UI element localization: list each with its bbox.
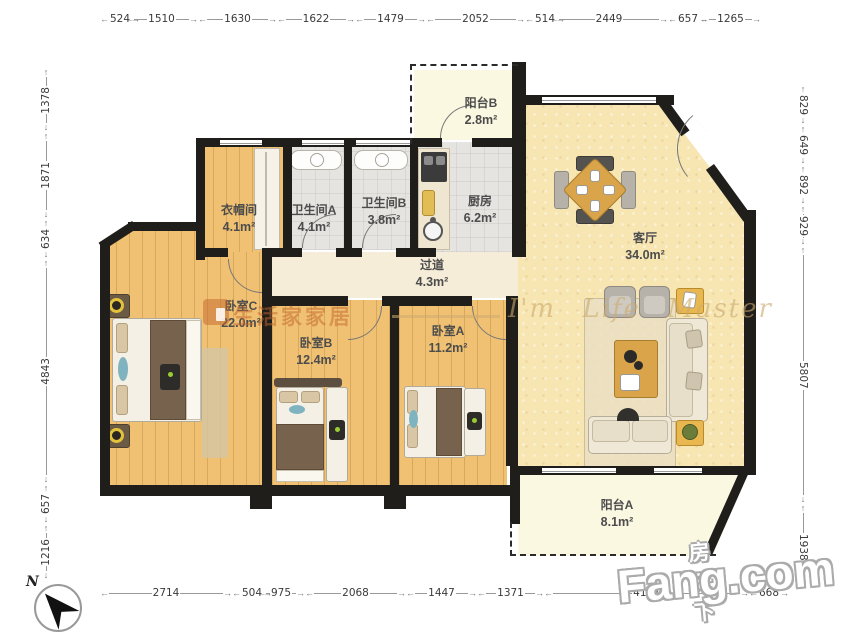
dim-value: 1630 xyxy=(223,13,252,25)
blanket-icon xyxy=(276,424,324,470)
dim-value: 2714 xyxy=(152,587,181,599)
room-area: 3.8m² xyxy=(362,212,407,228)
wall-segment xyxy=(262,138,302,147)
dimension-chain-top: 524 1510 1630 1622 1479 2052 514 2449 65… xyxy=(100,12,761,26)
room-area: 34.0m² xyxy=(625,247,665,263)
plate-icon xyxy=(590,200,600,212)
dim-value: 2052 xyxy=(461,13,490,25)
dim-value: 1479 xyxy=(376,13,405,25)
decor-icon xyxy=(634,361,643,370)
pillow-icon xyxy=(289,405,305,414)
room-name: 卧室A xyxy=(429,324,468,340)
wall-segment xyxy=(390,300,399,485)
room-label-balcony-a: 阳台A 8.1m² xyxy=(601,498,634,530)
wall-segment xyxy=(512,147,526,257)
basin-icon xyxy=(310,153,324,167)
room-area: 2.8m² xyxy=(465,112,498,128)
room-name: 厨房 xyxy=(464,194,497,210)
room-label-balcony-b: 阳台B 2.8m² xyxy=(465,96,498,128)
dimension-segment: 892 xyxy=(795,165,811,205)
room-label-corridor: 过道 4.3m² xyxy=(416,258,449,290)
floor-corridor xyxy=(265,252,518,298)
dimension-segment: 2052 xyxy=(426,12,525,26)
dim-value: 929 xyxy=(797,215,809,237)
plate-icon xyxy=(576,185,588,195)
wall-segment xyxy=(396,248,436,257)
window-segment xyxy=(356,138,410,147)
room-name: 阳台A xyxy=(601,498,634,514)
lamp-icon xyxy=(109,298,124,313)
brand-logo-icon xyxy=(203,299,229,325)
dimension-segment: 829 xyxy=(795,85,811,125)
dim-value: 4843 xyxy=(40,357,52,386)
window-segment xyxy=(542,95,656,105)
room-name: 阳台B xyxy=(465,96,498,112)
dim-value: 975 xyxy=(270,587,292,599)
room-label-kitchen: 厨房 6.2m² xyxy=(464,194,497,226)
wall-segment xyxy=(100,485,518,496)
dim-value: 1265 xyxy=(716,13,745,25)
dimension-segment: 975 xyxy=(257,586,305,600)
burner-icon xyxy=(424,156,433,165)
headboard-icon xyxy=(274,378,342,387)
indicator-dot-icon xyxy=(168,372,173,377)
room-label-cloakroom: 衣帽间 4.1m² xyxy=(221,203,257,235)
wall-segment xyxy=(744,210,756,472)
room-area: 12.4m² xyxy=(296,352,336,368)
room-area: 6.2m² xyxy=(464,210,497,226)
room-name: 过道 xyxy=(416,258,449,274)
floor-plan-canvas: 阳台B 2.8m² 衣帽间 4.1m² 卫生间A 4.1m² 卫生间B 3.8m… xyxy=(0,0,849,637)
room-area: 4.1m² xyxy=(221,219,257,235)
window-segment xyxy=(542,466,616,475)
dim-value: 634 xyxy=(40,228,52,250)
pillow-icon xyxy=(685,329,703,349)
dimension-segment: 524 xyxy=(100,12,125,26)
faucet-icon xyxy=(430,217,436,223)
room-label-bedroom-b: 卧室B 12.4m² xyxy=(296,336,336,368)
dimension-segment: 657 xyxy=(38,484,54,524)
wardrobe-rod-icon xyxy=(265,152,267,246)
burner-icon xyxy=(436,156,445,165)
dimension-segment: 1265 xyxy=(700,12,761,26)
dim-value: 1371 xyxy=(496,587,525,599)
dim-value: 1216 xyxy=(40,538,52,567)
wall-segment xyxy=(283,138,292,257)
dim-value: 892 xyxy=(797,174,809,196)
wall-segment xyxy=(262,250,272,495)
dimension-chain-right: 829 649 892 929 5807 1938 xyxy=(795,85,811,576)
wardrobe-icon xyxy=(254,148,280,250)
wall-segment xyxy=(526,95,542,105)
window-segment xyxy=(302,138,344,147)
pillow-icon xyxy=(279,391,298,403)
room-label-bedroom-a: 卧室A 11.2m² xyxy=(429,324,468,356)
pillow-icon xyxy=(301,391,320,403)
tray-icon xyxy=(620,374,640,391)
pillow-icon xyxy=(685,371,703,391)
dimension-segment: 4843 xyxy=(38,259,54,484)
wall-segment xyxy=(196,248,228,257)
dimension-segment: 634 xyxy=(38,219,54,259)
room-name: 卧室B xyxy=(296,336,336,352)
wall-segment xyxy=(100,243,110,495)
room-name: 衣帽间 xyxy=(221,203,257,219)
dimension-segment: 514 xyxy=(525,12,550,26)
dimension-segment: 929 xyxy=(795,205,811,246)
dimension-segment: 1371 xyxy=(477,586,544,600)
dimension-segment: 504 xyxy=(232,586,257,600)
room-area: 8.1m² xyxy=(601,514,634,530)
room-area: 11.2m² xyxy=(429,340,468,356)
wall-segment xyxy=(344,147,352,248)
pillow-icon xyxy=(118,357,128,381)
dimension-segment: 1622 xyxy=(277,12,355,26)
wall-segment xyxy=(410,147,418,248)
brand-watermark-dash xyxy=(392,315,500,318)
dimension-segment: 1630 xyxy=(198,12,277,26)
dimension-segment: 657 xyxy=(668,12,700,26)
compass-north-label: N xyxy=(26,574,39,590)
dimension-chain-left: 1378 1871 634 4843 657 1216 xyxy=(38,68,54,560)
plate-icon xyxy=(590,170,600,182)
room-area: 4.1m² xyxy=(292,219,337,235)
dim-value: 657 xyxy=(677,13,699,25)
pillow-icon xyxy=(409,410,418,428)
brand-watermark-text: 生活家家居 xyxy=(233,301,353,331)
rug-icon xyxy=(202,348,228,458)
pillow-icon xyxy=(116,323,128,353)
dimension-segment: 1479 xyxy=(355,12,426,26)
wall-segment xyxy=(616,466,654,475)
dim-value: 1510 xyxy=(147,13,176,25)
room-label-bathroom-b: 卫生间B 3.8m² xyxy=(362,196,407,228)
wall-segment xyxy=(196,138,205,260)
pillow-icon xyxy=(116,385,128,415)
wall-segment xyxy=(250,496,272,509)
blanket-icon xyxy=(436,388,462,456)
dim-value: 657 xyxy=(40,493,52,515)
dimension-segment: 1871 xyxy=(38,132,54,219)
window-segment xyxy=(220,138,262,147)
wall-segment xyxy=(344,138,356,147)
dimension-segment: 1216 xyxy=(38,524,54,580)
dimension-segment: 1447 xyxy=(406,586,477,600)
room-name: 卫生间A xyxy=(292,203,337,219)
window-segment xyxy=(654,466,702,475)
dim-value: 1871 xyxy=(40,161,52,190)
cutting-board-icon xyxy=(422,190,435,216)
dimension-segment: 2068 xyxy=(305,586,406,600)
dim-value: 649 xyxy=(797,134,809,156)
room-label-living-room: 客厅 34.0m² xyxy=(625,231,665,263)
dimension-segment: 649 xyxy=(795,125,811,165)
dim-value: 5807 xyxy=(797,361,809,390)
tv-icon xyxy=(160,364,180,390)
plate-icon xyxy=(603,185,615,195)
sheet-icon xyxy=(276,470,324,482)
sink-icon xyxy=(423,221,443,241)
room-name: 卫生间B xyxy=(362,196,407,212)
plant-icon xyxy=(682,424,698,440)
dim-value: 1447 xyxy=(427,587,456,599)
indicator-dot-icon xyxy=(472,418,477,423)
dim-value: 2068 xyxy=(341,587,370,599)
lamp-icon xyxy=(109,428,124,443)
wall-segment xyxy=(336,248,362,257)
room-area: 4.3m² xyxy=(416,274,449,290)
dim-value: 2449 xyxy=(595,13,624,25)
brand-watermark-script: I'm Life Master xyxy=(508,294,773,324)
dimension-segment: 1378 xyxy=(38,68,54,132)
dim-value: 1622 xyxy=(302,13,331,25)
dimension-segment: 2714 xyxy=(100,586,232,600)
room-name: 客厅 xyxy=(625,231,665,247)
dim-value: 1378 xyxy=(40,86,52,115)
loveseat-cushion-icon xyxy=(592,420,630,442)
wall-segment xyxy=(384,496,406,509)
loveseat-cushion-icon xyxy=(632,420,668,442)
indicator-dot-icon xyxy=(335,427,340,432)
dimension-segment: 1510 xyxy=(125,12,198,26)
sheet-icon xyxy=(186,320,201,420)
dim-value: 829 xyxy=(797,94,809,116)
room-label-bathroom-a: 卫生间A 4.1m² xyxy=(292,203,337,235)
basin-icon xyxy=(375,153,389,167)
dimension-segment: 5807 xyxy=(795,246,811,504)
wall-segment xyxy=(128,222,204,231)
compass-icon: N xyxy=(24,574,84,634)
dimension-segment: 2449 xyxy=(550,12,668,26)
